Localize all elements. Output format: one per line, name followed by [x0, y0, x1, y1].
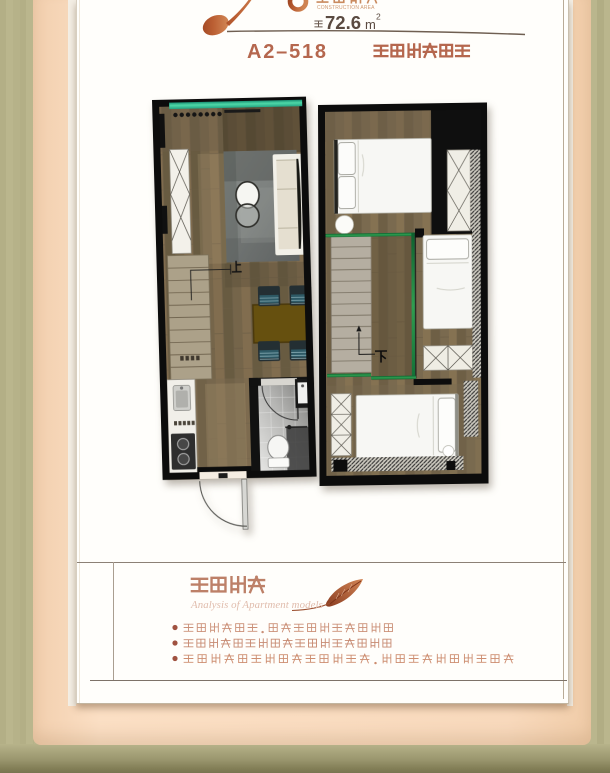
svg-text:Analysis of Apartment models: Analysis of Apartment models: [190, 599, 323, 611]
